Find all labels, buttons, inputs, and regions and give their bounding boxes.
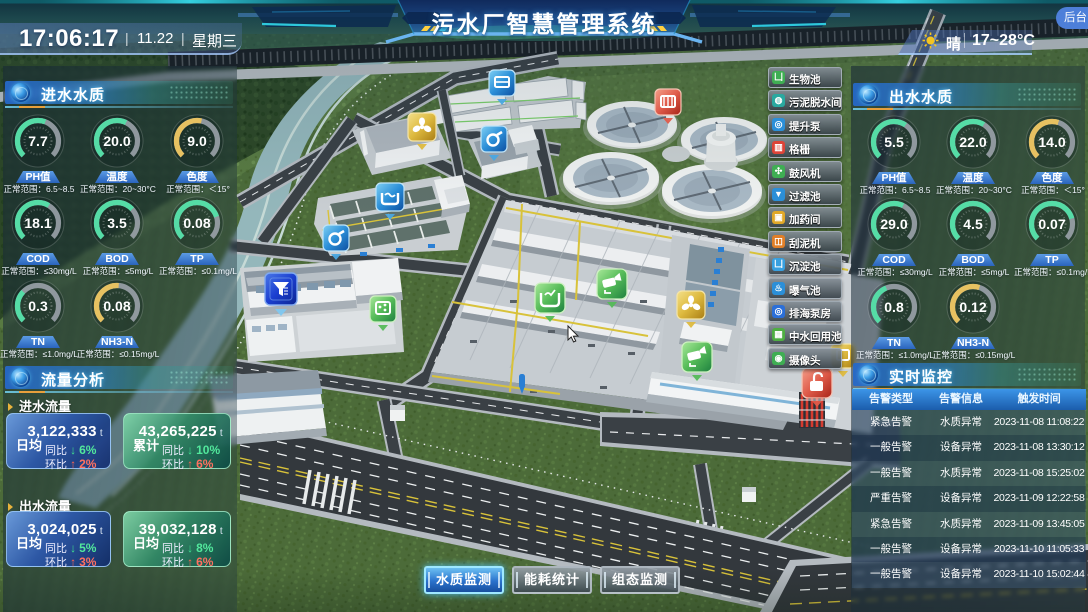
svg-text:9.0: 9.0 xyxy=(187,133,207,149)
svg-text:18.1: 18.1 xyxy=(24,215,51,231)
svg-text:29.0: 29.0 xyxy=(880,216,907,232)
svg-text:0.08: 0.08 xyxy=(103,298,130,314)
svg-text:3.5: 3.5 xyxy=(107,215,127,231)
svg-text:0.08: 0.08 xyxy=(183,215,210,231)
svg-text:0.8: 0.8 xyxy=(884,299,904,315)
svg-text:0.07: 0.07 xyxy=(1038,216,1065,232)
svg-text:20.0: 20.0 xyxy=(103,133,130,149)
svg-text:14.0: 14.0 xyxy=(1038,134,1065,150)
svg-text:5.5: 5.5 xyxy=(884,134,904,150)
svg-text:0.3: 0.3 xyxy=(28,298,48,314)
svg-text:7.7: 7.7 xyxy=(28,133,48,149)
svg-text:22.0: 22.0 xyxy=(959,134,986,150)
svg-text:0.12: 0.12 xyxy=(959,299,986,315)
svg-text:4.5: 4.5 xyxy=(963,216,983,232)
